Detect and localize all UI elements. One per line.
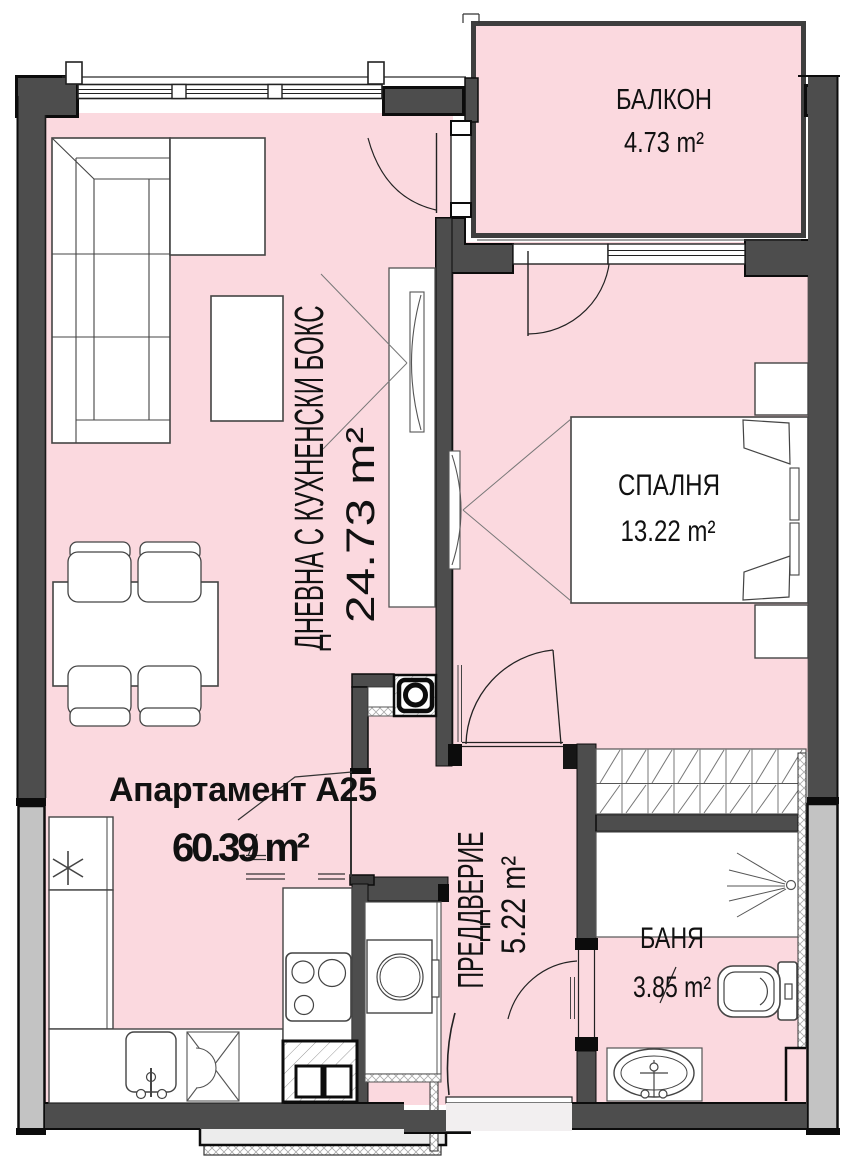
svg-text:3.85 m²: 3.85 m² [633,971,711,1004]
svg-text:ПРЕДДВЕРИЕ: ПРЕДДВЕРИЕ [450,832,491,989]
svg-text:ДНЕВНА С КУХНЕНСКИ БОКС: ДНЕВНА С КУХНЕНСКИ БОКС [286,306,332,651]
svg-text:13.22 m²: 13.22 m² [621,515,716,548]
svg-text:24.73 m²: 24.73 m² [339,427,383,623]
svg-text:60.39 m²: 60.39 m² [172,826,310,870]
svg-text:СПАЛНЯ: СПАЛНЯ [618,469,720,502]
svg-text:Апартамент А25: Апартамент А25 [109,771,377,809]
svg-text:5.22 m²: 5.22 m² [495,856,533,954]
svg-text:БАЛКОН: БАЛКОН [616,84,712,116]
svg-text:4.73 m²: 4.73 m² [624,127,704,159]
svg-text:БАНЯ: БАНЯ [640,922,704,955]
